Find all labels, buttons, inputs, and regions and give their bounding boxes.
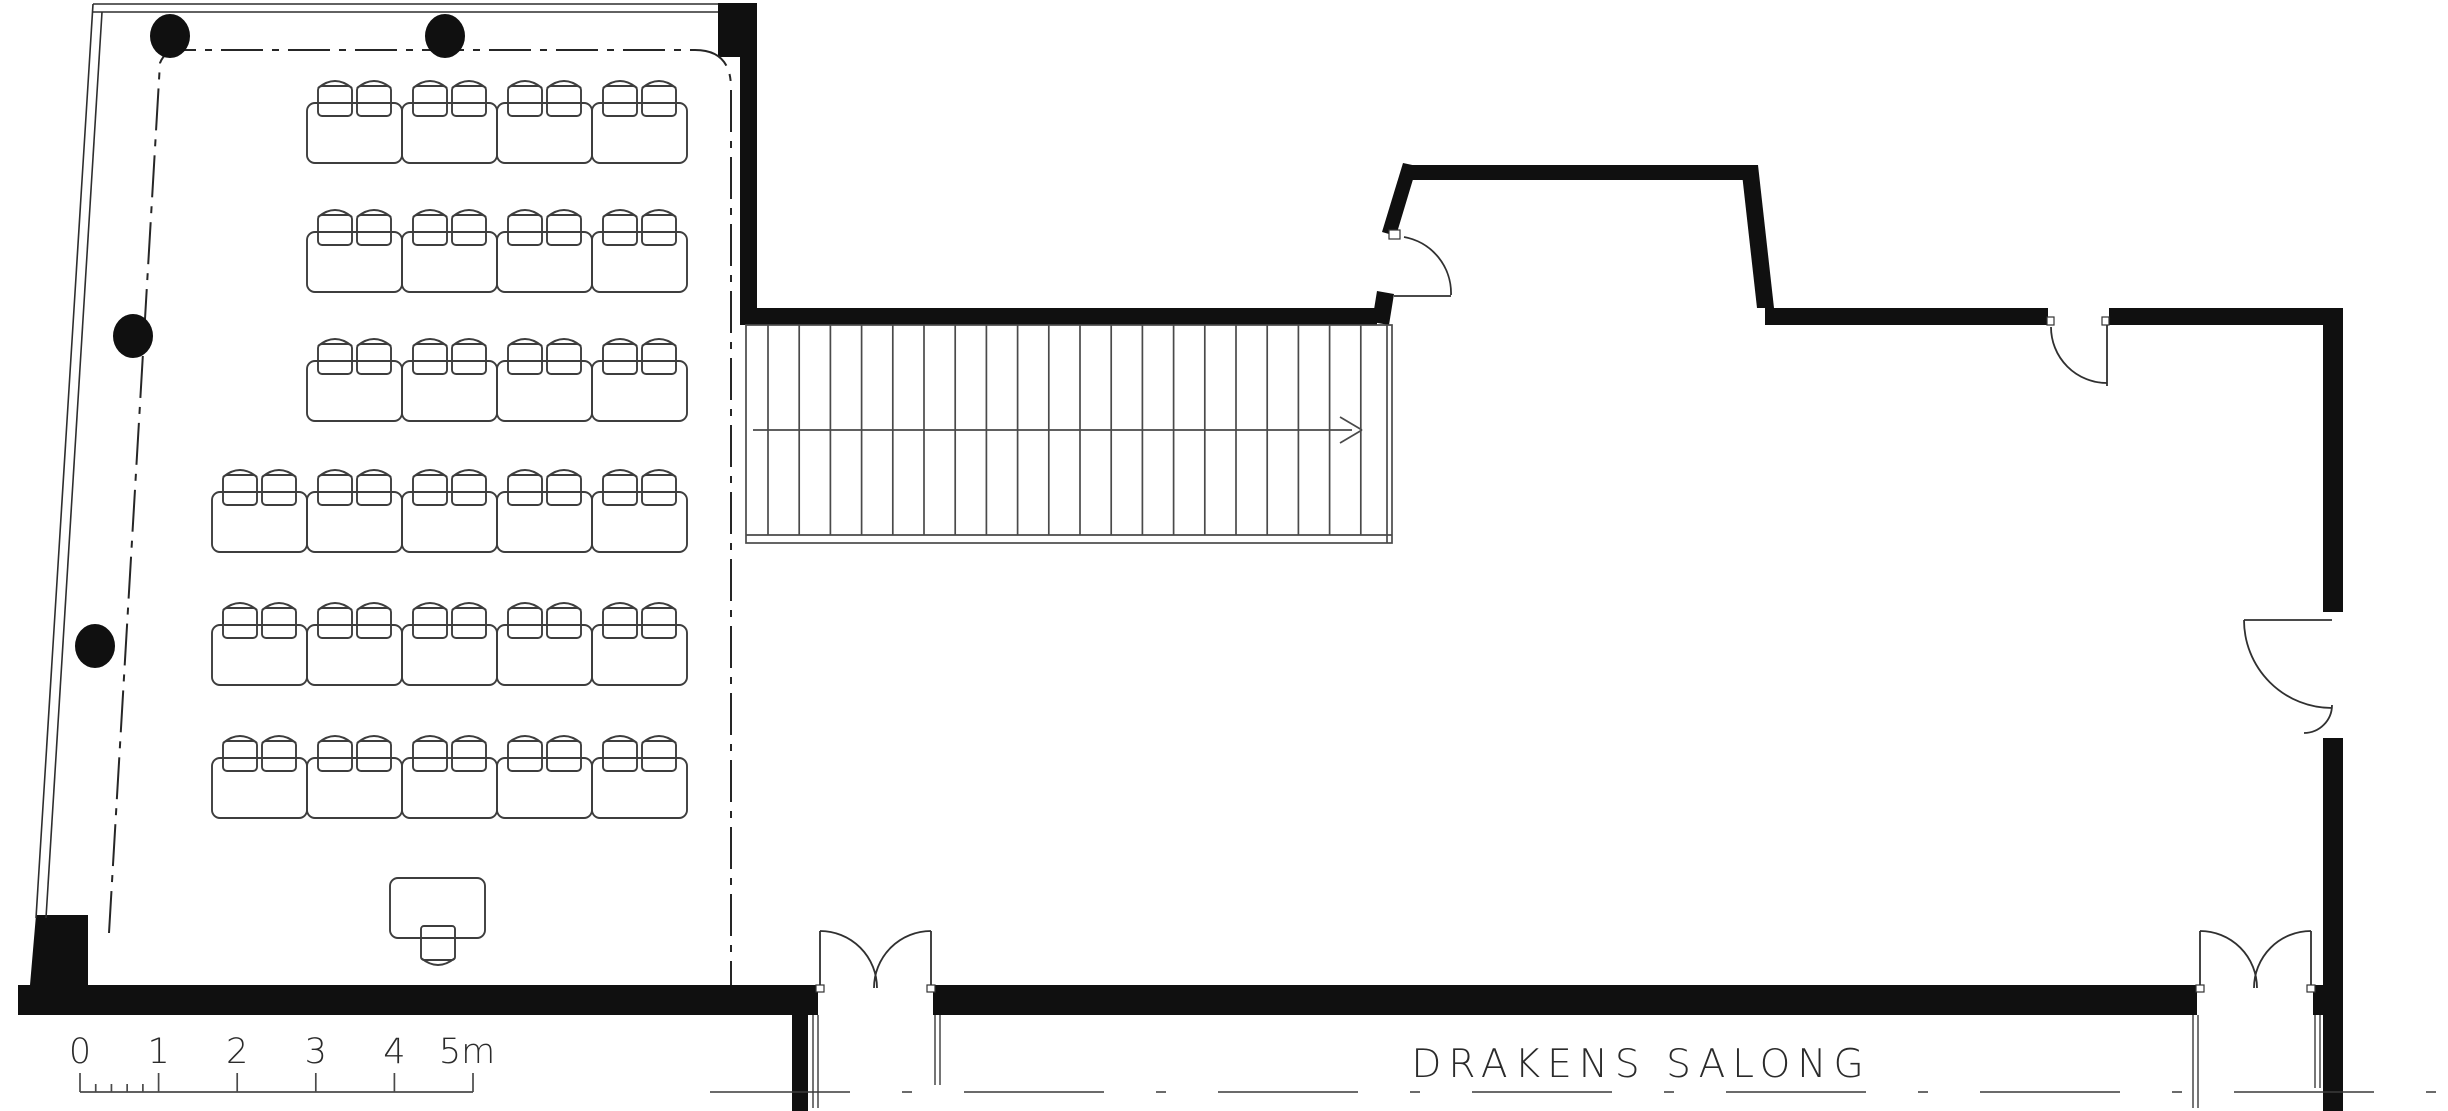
floor-plan-drawing: 012345m DRAKENS SALONG xyxy=(0,0,2448,1111)
chair xyxy=(508,215,542,245)
desk-table xyxy=(402,492,497,552)
chair xyxy=(603,475,637,505)
chair xyxy=(413,344,447,374)
chair xyxy=(452,741,486,771)
desk-table xyxy=(592,625,687,685)
desk xyxy=(212,603,307,685)
wall-bottom-middle xyxy=(933,985,2197,1015)
stair-outline xyxy=(746,325,1392,543)
chair xyxy=(452,475,486,505)
arrow-head-lower xyxy=(1340,430,1362,443)
door-hinge-plate xyxy=(1389,230,1400,239)
desk xyxy=(402,81,497,163)
chair xyxy=(642,344,676,374)
wall-stair-end-jamb xyxy=(1372,291,1394,325)
desk xyxy=(592,736,687,818)
chair xyxy=(547,475,581,505)
chair xyxy=(508,344,542,374)
wall-left-inner-line xyxy=(46,12,102,918)
desk xyxy=(307,210,402,292)
wall-bottomleft-corner xyxy=(30,915,88,985)
column xyxy=(75,624,115,668)
scale-label: 1 xyxy=(147,1032,169,1072)
door-hinge-plate xyxy=(2102,317,2109,325)
desk-table xyxy=(307,758,402,818)
chair xyxy=(508,475,542,505)
chair xyxy=(357,215,391,245)
desk-table xyxy=(592,758,687,818)
double-door-bottom-left xyxy=(816,931,935,992)
chair xyxy=(642,215,676,245)
wall-stub-below-door xyxy=(792,1015,808,1111)
lectern-chair xyxy=(421,926,455,960)
desk xyxy=(402,470,497,552)
wall-classroom-topright-block xyxy=(718,3,757,57)
floor-plan-page: 012345m DRAKENS SALONG xyxy=(0,0,2448,1111)
chair xyxy=(318,86,352,116)
desk-table xyxy=(307,361,402,421)
doors xyxy=(816,230,2332,992)
chair xyxy=(318,741,352,771)
desk xyxy=(592,603,687,685)
desk-table xyxy=(307,103,402,163)
chair xyxy=(262,741,296,771)
thin-walls xyxy=(36,4,718,918)
desk xyxy=(307,736,402,818)
column xyxy=(113,314,153,358)
thick-walls xyxy=(18,3,2343,1111)
desk-table xyxy=(497,625,592,685)
door-hinge-plate xyxy=(2047,317,2054,325)
door-hinge-plate xyxy=(816,985,824,992)
chair xyxy=(452,608,486,638)
chair xyxy=(642,475,676,505)
scale-label: 5m xyxy=(439,1032,495,1072)
wall-right-lower xyxy=(2323,738,2343,1111)
chair xyxy=(452,215,486,245)
lectern-table xyxy=(390,878,485,938)
chair xyxy=(262,475,296,505)
chair xyxy=(357,344,391,374)
chair xyxy=(223,608,257,638)
desk xyxy=(402,210,497,292)
desk-table xyxy=(497,361,592,421)
desk-table xyxy=(212,625,307,685)
arrow-head-upper xyxy=(1340,417,1362,430)
desk xyxy=(592,470,687,552)
chair xyxy=(318,215,352,245)
chair xyxy=(642,86,676,116)
desk xyxy=(402,603,497,685)
chair xyxy=(603,608,637,638)
wall-bottom-right-bit xyxy=(2313,985,2343,1015)
scale-label: 0 xyxy=(69,1032,91,1072)
wall-bottom-left xyxy=(18,985,818,1015)
room-boundary-dashdot-line xyxy=(109,50,731,985)
wall-hall-top-a xyxy=(1765,308,2048,325)
door-upper-hall xyxy=(2047,317,2109,386)
lectern xyxy=(390,878,485,965)
chair xyxy=(413,86,447,116)
chair xyxy=(547,608,581,638)
seating-area xyxy=(212,81,687,818)
desk-table xyxy=(592,492,687,552)
chair xyxy=(508,86,542,116)
desk-table xyxy=(592,232,687,292)
chair xyxy=(413,741,447,771)
door-hinge-plate xyxy=(2196,985,2204,992)
desk xyxy=(497,736,592,818)
desk xyxy=(307,470,402,552)
chair xyxy=(357,475,391,505)
staircase xyxy=(746,325,1392,543)
chair xyxy=(318,344,352,374)
desk xyxy=(212,470,307,552)
desk-table xyxy=(307,492,402,552)
chair xyxy=(413,608,447,638)
desk xyxy=(307,339,402,421)
column xyxy=(150,14,190,58)
desk-table xyxy=(402,625,497,685)
desk xyxy=(497,603,592,685)
chair xyxy=(603,344,637,374)
desk xyxy=(307,81,402,163)
chair xyxy=(603,86,637,116)
chair xyxy=(603,215,637,245)
chair xyxy=(262,608,296,638)
desk-table xyxy=(402,103,497,163)
chair xyxy=(642,741,676,771)
scale-label: 2 xyxy=(226,1032,248,1072)
chair xyxy=(413,475,447,505)
desk-table xyxy=(402,232,497,292)
desk-table xyxy=(402,758,497,818)
chair xyxy=(547,86,581,116)
desk-table xyxy=(592,103,687,163)
chair xyxy=(318,475,352,505)
desk-table xyxy=(497,103,592,163)
desk-table xyxy=(497,492,592,552)
chair xyxy=(452,86,486,116)
wall-upper-right-top xyxy=(1404,165,1749,180)
chair xyxy=(547,215,581,245)
scale-label: 4 xyxy=(383,1032,405,1072)
room-label: DRAKENS SALONG xyxy=(1411,1042,1870,1087)
stair-direction-arrow xyxy=(753,417,1362,443)
desk-table xyxy=(402,361,497,421)
door-stair-landing xyxy=(1389,230,1451,296)
chair xyxy=(508,608,542,638)
door-hinge-plate xyxy=(927,985,935,992)
scale-bar: 012345m xyxy=(69,1032,495,1092)
wall-stair-top xyxy=(740,308,1377,325)
chair xyxy=(223,475,257,505)
wall-classroom-right xyxy=(740,57,757,308)
door-hinge-plate xyxy=(2307,985,2315,992)
desk-table xyxy=(307,625,402,685)
desk-table xyxy=(592,361,687,421)
double-door-bottom-right xyxy=(2196,931,2315,992)
chair xyxy=(318,608,352,638)
chair xyxy=(223,741,257,771)
column xyxy=(425,14,465,58)
chair xyxy=(547,344,581,374)
desk xyxy=(497,339,592,421)
chair xyxy=(603,741,637,771)
chair xyxy=(547,741,581,771)
chair xyxy=(452,344,486,374)
wall-left-outer-line xyxy=(36,4,93,918)
chair xyxy=(357,741,391,771)
chair xyxy=(508,741,542,771)
wall-right-upper xyxy=(2323,308,2343,612)
wall-jog-slanted xyxy=(1741,165,1774,308)
desk xyxy=(592,210,687,292)
desk xyxy=(212,736,307,818)
desk xyxy=(592,339,687,421)
desk-table xyxy=(497,232,592,292)
desk xyxy=(497,210,592,292)
chair xyxy=(357,608,391,638)
desk xyxy=(402,736,497,818)
desk-table xyxy=(212,492,307,552)
desk xyxy=(307,603,402,685)
chair xyxy=(642,608,676,638)
desk xyxy=(497,470,592,552)
door-right-wall xyxy=(2244,620,2332,733)
chair xyxy=(357,86,391,116)
structural-columns xyxy=(75,14,465,668)
desk xyxy=(592,81,687,163)
desk-table xyxy=(212,758,307,818)
desk-table xyxy=(307,232,402,292)
scale-label: 3 xyxy=(305,1032,327,1072)
chair xyxy=(413,215,447,245)
desk xyxy=(402,339,497,421)
desk xyxy=(497,81,592,163)
desk-table xyxy=(497,758,592,818)
wall-hall-top-b xyxy=(2109,308,2343,325)
